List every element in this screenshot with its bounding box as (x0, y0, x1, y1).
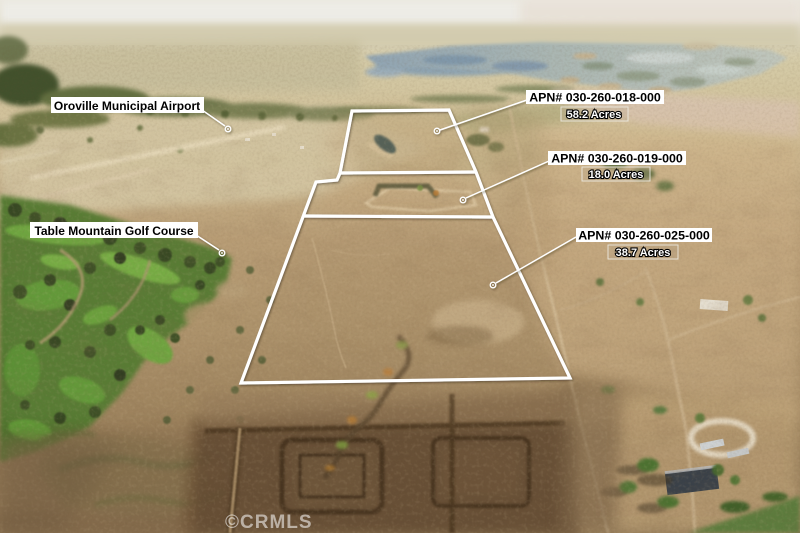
svg-text:58.2 Acres: 58.2 Acres (567, 109, 622, 121)
svg-text:38.7 Acres: 38.7 Acres (616, 247, 671, 259)
svg-text:Oroville Municipal Airport: Oroville Municipal Airport (54, 99, 200, 113)
svg-text:Table Mountain Golf Course: Table Mountain Golf Course (34, 224, 193, 238)
svg-text:APN# 030-260-025-000: APN# 030-260-025-000 (578, 229, 710, 243)
svg-text:APN# 030-260-018-000: APN# 030-260-018-000 (529, 91, 661, 105)
svg-text:18.0 Acres: 18.0 Acres (589, 169, 644, 181)
svg-text:©CRMLS: ©CRMLS (225, 512, 313, 533)
svg-text:APN# 030-260-019-000: APN# 030-260-019-000 (551, 152, 683, 166)
